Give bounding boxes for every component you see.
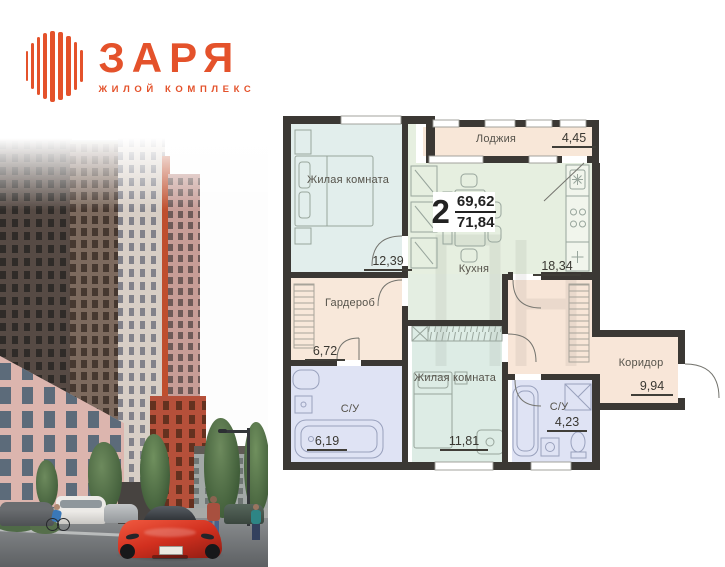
wardrobe-closet: [294, 284, 314, 348]
photo-top-fade: [0, 130, 268, 210]
room-label-kitchen: Кухня: [444, 263, 504, 275]
kitchen-counter: [566, 165, 589, 271]
street-lamp-head: [218, 429, 227, 433]
room-label-corridor: Коридор: [603, 357, 679, 369]
room-area-bathroom-right: 4,23: [547, 415, 587, 432]
tree: [36, 460, 58, 508]
cyclist: [46, 504, 68, 530]
tree: [140, 434, 170, 512]
tower-pink-right: [168, 174, 200, 420]
sunrise-strokes-icon: [26, 26, 83, 106]
room-label-loggia: Лоджия: [456, 133, 536, 145]
car-wheel-left: [120, 544, 135, 559]
logo: ЗАРЯ ЖИЛОЙ КОМПЛЕКС: [26, 26, 255, 106]
rooms-count: 2: [432, 197, 450, 227]
room-area-kitchen: 18,34: [533, 259, 581, 276]
entrance-door-arc: [685, 364, 719, 398]
room-label-wardrobe: Гардероб: [310, 297, 390, 309]
sink-icon: [572, 174, 583, 185]
floor-plan-drawing: [283, 108, 723, 478]
car-intake: [152, 555, 188, 559]
room-kitchen: [408, 124, 416, 163]
area-lower: 71,84: [457, 213, 495, 231]
room-area-wardrobe: 6,72: [305, 344, 345, 361]
room-area-bedroom-bottom: 11,81: [440, 434, 488, 451]
hall-closet: [569, 284, 589, 362]
room-bedroom-top: [291, 124, 402, 272]
building-render-photo: [0, 130, 268, 567]
car-license-plate: [159, 546, 183, 555]
floor-plan: 2 69,62 71,84 Лоджия 4,45 Жилая комната …: [283, 108, 723, 478]
red-sports-car: [118, 506, 222, 564]
logo-title: ЗАРЯ: [99, 37, 256, 79]
room-label-bathroom-left: С/У: [330, 403, 370, 415]
room-area-loggia: 4,45: [552, 131, 596, 148]
room-label-bathroom-right: С/У: [539, 401, 579, 413]
room-area-bedroom-top: 12,39: [364, 254, 412, 271]
pedestrian: [250, 504, 262, 542]
room-kitchen-hall: [408, 274, 502, 320]
area-upper: 69,62: [455, 193, 497, 213]
balcony-door-opening: [562, 156, 587, 163]
room-label-bedroom-top: Жилая комната: [293, 174, 403, 186]
car-hood-glare: [144, 528, 196, 537]
real-estate-flyer: ЗАРЯ ЖИЛОЙ КОМПЛЕКС: [0, 0, 725, 567]
car-wheel-right: [205, 544, 220, 559]
room-area-bathroom-left: 6,19: [307, 434, 347, 451]
room-area-corridor: 9,94: [631, 379, 673, 396]
logo-subtitle: ЖИЛОЙ КОМПЛЕКС: [99, 84, 256, 95]
room-label-bedroom-bottom: Жилая комната: [400, 372, 510, 384]
apartment-info-box: 2 69,62 71,84: [433, 192, 495, 232]
room-hall-passage: [592, 337, 600, 374]
